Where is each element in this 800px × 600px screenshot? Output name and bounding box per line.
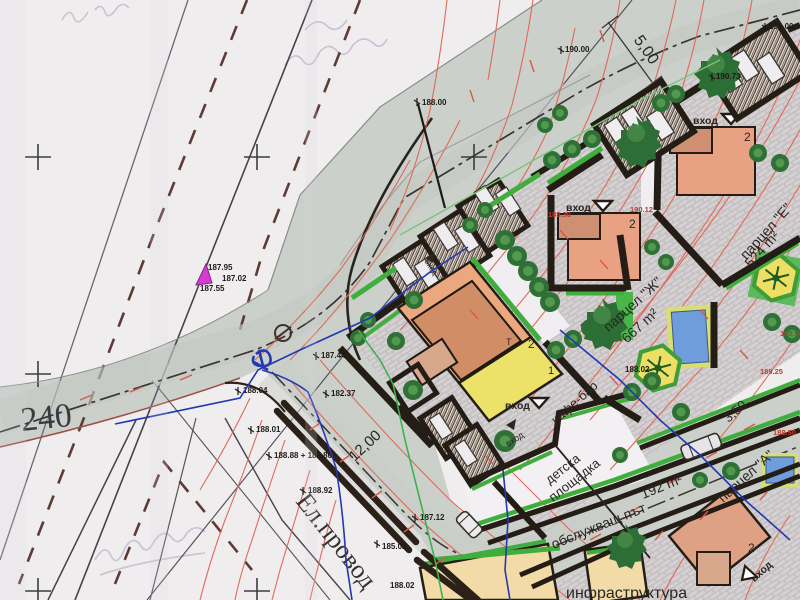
svg-text:188.50: 188.50 [780,329,800,338]
svg-text:188.50: 188.50 [773,428,796,437]
svg-text:вход: вход [505,400,530,412]
svg-text:2: 2 [629,217,636,231]
svg-text:240: 240 [19,397,74,439]
svg-text:190.73: 190.73 [716,72,741,81]
svg-text:188.02: 188.02 [625,365,650,374]
svg-text:187.55: 187.55 [200,284,225,293]
svg-text:191.00: 191.00 [769,22,794,31]
svg-text:187.44: 187.44 [321,351,346,360]
svg-text:189.25: 189.25 [760,367,783,376]
svg-text:182.37: 182.37 [331,389,356,398]
svg-text:190.12: 190.12 [630,205,653,214]
svg-text:185.02: 185.02 [382,542,407,551]
svg-text:188.00: 188.00 [422,98,447,107]
svg-text:188.88 + 188.80: 188.88 + 188.80 [274,451,333,460]
svg-text:188.30: 188.30 [548,210,571,219]
svg-text:вход: вход [693,115,718,127]
svg-text:187.95: 187.95 [208,263,233,272]
svg-text:2: 2 [744,130,751,144]
svg-text:инфраструктура: инфраструктура [566,585,687,600]
svg-text:188.01: 188.01 [256,425,281,434]
svg-text:2: 2 [748,541,755,555]
svg-text:187.02: 187.02 [222,274,247,283]
svg-text:2: 2 [528,337,535,351]
svg-text:188.02: 188.02 [390,581,415,590]
svg-text:1: 1 [548,365,554,377]
svg-text:190.00: 190.00 [565,45,590,54]
svg-text:Т: Т [506,337,512,347]
